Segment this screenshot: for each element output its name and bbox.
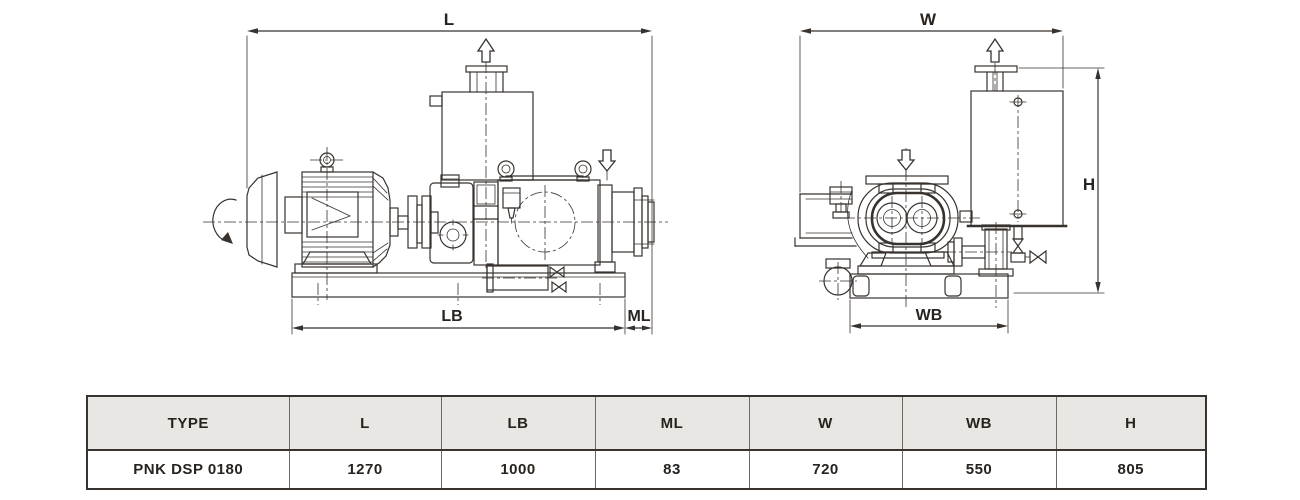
dimension-W: W <box>800 10 1063 192</box>
motor-nameplate <box>307 192 358 237</box>
col-header-w: W <box>749 396 902 450</box>
silencer-tank-end <box>968 39 1066 226</box>
casing-eyebolt2-icon <box>575 161 591 181</box>
tank-drain-valve-icon <box>1011 226 1046 263</box>
dim-arrow-left-icon <box>247 28 258 34</box>
dim-L-label: L <box>444 10 454 29</box>
discharge-arrow-icon <box>478 39 494 62</box>
col-header-lb: LB <box>441 396 595 450</box>
dim-arrow-right-icon <box>641 28 652 34</box>
spec-table: TYPE L LB ML W WB H PNK DSP 0180 1270 10… <box>86 395 1207 490</box>
cell-lb: 1000 <box>441 450 595 489</box>
cell-type: PNK DSP 0180 <box>87 450 289 489</box>
rotation-arrow-icon <box>213 199 236 244</box>
motor-end-bell <box>373 172 390 267</box>
col-header-type: TYPE <box>87 396 289 450</box>
silencer-tank-side <box>430 39 533 268</box>
col-header-ml: ML <box>595 396 749 450</box>
side-view: L <box>203 10 668 334</box>
suction-arrow-icon <box>599 150 615 171</box>
drain-valve2-icon <box>552 282 566 292</box>
drain-valve-icon <box>550 267 564 277</box>
suction-end <box>595 150 654 272</box>
spec-table-header-row: TYPE L LB ML W WB H <box>87 396 1206 450</box>
cell-w: 720 <box>749 450 902 489</box>
col-header-h: H <box>1056 396 1206 450</box>
dim-ML-label: ML <box>627 308 650 325</box>
motor-fins <box>302 177 373 262</box>
oiler-icon <box>441 175 459 187</box>
pump-casing-end <box>843 148 980 308</box>
cell-h: 805 <box>1056 450 1206 489</box>
shaft-end-flange-icon <box>819 259 857 300</box>
gearbox <box>430 175 498 265</box>
dimension-WB: WB <box>850 300 1008 333</box>
motor-bracket-end <box>795 181 857 300</box>
dimension-LB: LB <box>292 299 625 334</box>
casing-eyebolt-icon <box>498 161 514 181</box>
dim-WB-label: WB <box>916 307 943 324</box>
pump-casing-side <box>498 161 600 265</box>
spec-table-data-row: PNK DSP 0180 1270 1000 83 720 550 805 <box>87 450 1206 489</box>
dimension-ML: ML <box>625 308 652 331</box>
cell-wb: 550 <box>902 450 1056 489</box>
cell-ml: 83 <box>595 450 749 489</box>
discharge-arrow-end-icon <box>987 39 1003 62</box>
dim-W-label: W <box>920 10 937 29</box>
pump-dimension-sheet: L <box>0 0 1300 500</box>
dim-H-label: H <box>1083 175 1095 194</box>
oil-reservoir <box>482 264 566 292</box>
col-header-wb: WB <box>902 396 1056 450</box>
drip-oiler-icon <box>503 188 520 223</box>
dim-LB-label: LB <box>441 308 462 325</box>
end-view: W <box>795 10 1104 333</box>
motor-eyebolt-icon <box>310 153 345 172</box>
sight-glass-icon <box>440 222 466 248</box>
cell-l: 1270 <box>289 450 441 489</box>
base-frame-side <box>292 273 625 305</box>
drawing-canvas: L <box>0 0 1300 390</box>
base-frame-end <box>850 252 1008 298</box>
col-header-l: L <box>289 396 441 450</box>
suction-arrow-end-icon <box>898 150 914 170</box>
dimension-H: H <box>1014 68 1104 293</box>
